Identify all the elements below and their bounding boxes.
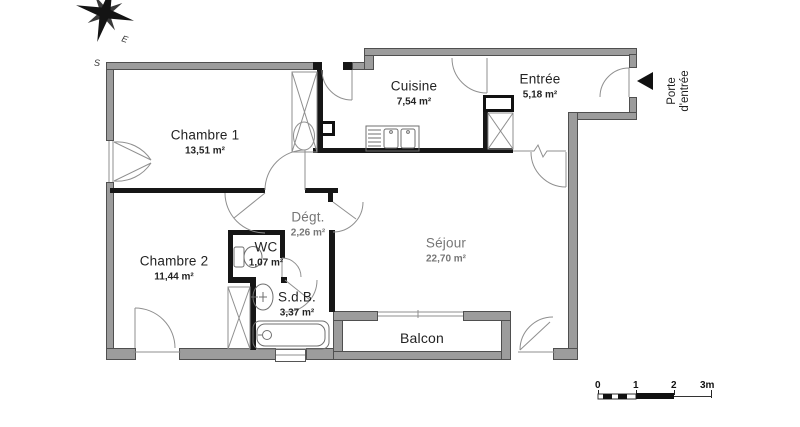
scale-label-1: 1 [633, 380, 639, 391]
door-chambre1 [265, 150, 305, 190]
room-label-sdb: S.d.B. 3,37 m² [278, 290, 316, 319]
compass-south-label: S [94, 58, 100, 68]
window-chambre1 [109, 141, 151, 182]
bathtub-icon [253, 321, 329, 349]
scale-bar [598, 390, 712, 399]
room-label-cuisine: Cuisine 7,54 m² [391, 79, 437, 108]
door-entrance [600, 68, 629, 97]
opening-symbol [513, 145, 566, 157]
room-name: Dégt. [291, 210, 325, 225]
room-name: Chambre 1 [171, 128, 240, 143]
porte-entree-line1: Porte [666, 46, 679, 136]
closet-entree [488, 113, 513, 149]
porte-entree-label: Porte d'entrée [634, 46, 724, 136]
door-degt-sejour [333, 202, 363, 232]
scale-label-0: 0 [595, 380, 601, 391]
room-name: WC [249, 240, 283, 255]
room-name: Séjour [426, 236, 466, 251]
door-cuisine-top [322, 70, 352, 100]
room-area: 3,37 m² [278, 308, 316, 319]
closet-chambre2 [228, 287, 250, 349]
room-area: 13,51 m² [171, 146, 240, 157]
room-area: 5,18 m² [520, 90, 561, 101]
room-area: 1,07 m² [249, 258, 283, 269]
scale-label-2: 2 [671, 380, 677, 391]
room-area: 2,26 m² [291, 228, 325, 239]
door-chambre2 [225, 193, 265, 233]
washbasin-icon [251, 284, 273, 310]
room-label-balcon: Balcon [400, 330, 444, 346]
compass-major-star [68, 0, 141, 50]
compass-rose: S E [68, 0, 141, 68]
room-label-chambre1: Chambre 1 13,51 m² [171, 128, 240, 157]
room-label-sejour: Séjour 22,70 m² [426, 236, 466, 265]
room-label-chambre2: Chambre 2 11,44 m² [140, 254, 209, 283]
room-name: Entrée [520, 72, 561, 87]
closet-chambre1 [292, 72, 317, 152]
room-label-entree: Entrée 5,18 m² [520, 72, 561, 101]
room-name: Cuisine [391, 79, 437, 94]
room-label-degt: Dégt. 2,26 m² [291, 210, 325, 239]
door-entree-sejour [531, 152, 566, 187]
room-area: 7,54 m² [391, 97, 437, 108]
room-label-wc: WC 1,07 m² [249, 240, 283, 269]
room-name: S.d.B. [278, 290, 316, 305]
compass-east-label: E [120, 33, 130, 45]
window-chambre2 [133, 308, 181, 352]
sliding-door-balcony [378, 310, 463, 318]
door-cuisine-entree [452, 58, 487, 93]
room-name: Chambre 2 [140, 254, 209, 269]
window-sejour [518, 317, 556, 352]
floor-plan: S E Chambre 1 13,51 m² Cuisine 7,54 m² E… [0, 0, 800, 427]
room-area: 11,44 m² [140, 272, 209, 283]
room-area: 22,70 m² [426, 254, 466, 265]
door-wc [282, 258, 301, 277]
porte-entree-line2: d'entrée [679, 46, 692, 136]
scale-label-3m: 3m [700, 380, 714, 391]
room-name: Balcon [400, 330, 444, 346]
kitchen-sink-icon [366, 126, 419, 151]
